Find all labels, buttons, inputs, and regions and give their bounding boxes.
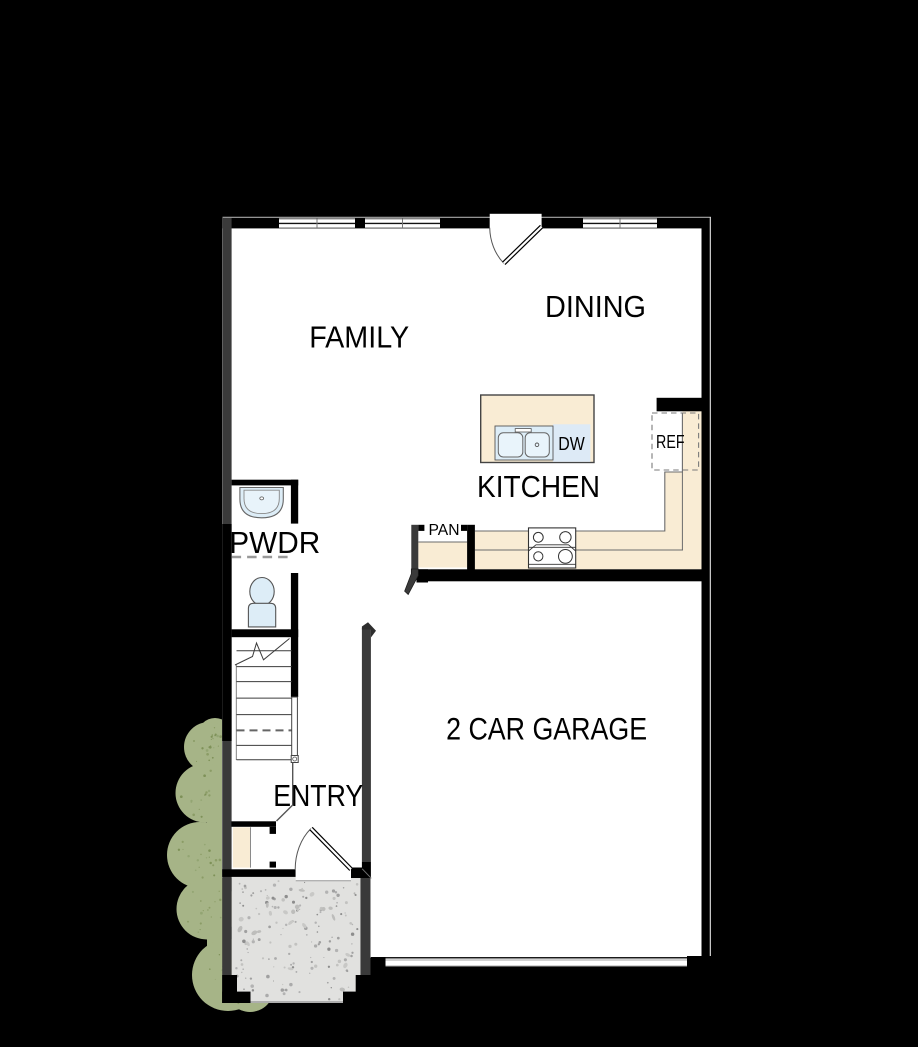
svg-text:PWDR: PWDR xyxy=(229,526,320,560)
svg-text:KITCHEN: KITCHEN xyxy=(477,470,600,504)
svg-text:REF: REF xyxy=(656,432,685,452)
svg-text:ENTRY: ENTRY xyxy=(273,779,363,813)
svg-text:FAMILY: FAMILY xyxy=(309,320,409,354)
svg-text:DW: DW xyxy=(558,434,585,454)
svg-text:PAN: PAN xyxy=(429,522,460,539)
svg-text:DINING: DINING xyxy=(545,290,646,324)
svg-text:2 CAR GARAGE: 2 CAR GARAGE xyxy=(446,710,647,746)
